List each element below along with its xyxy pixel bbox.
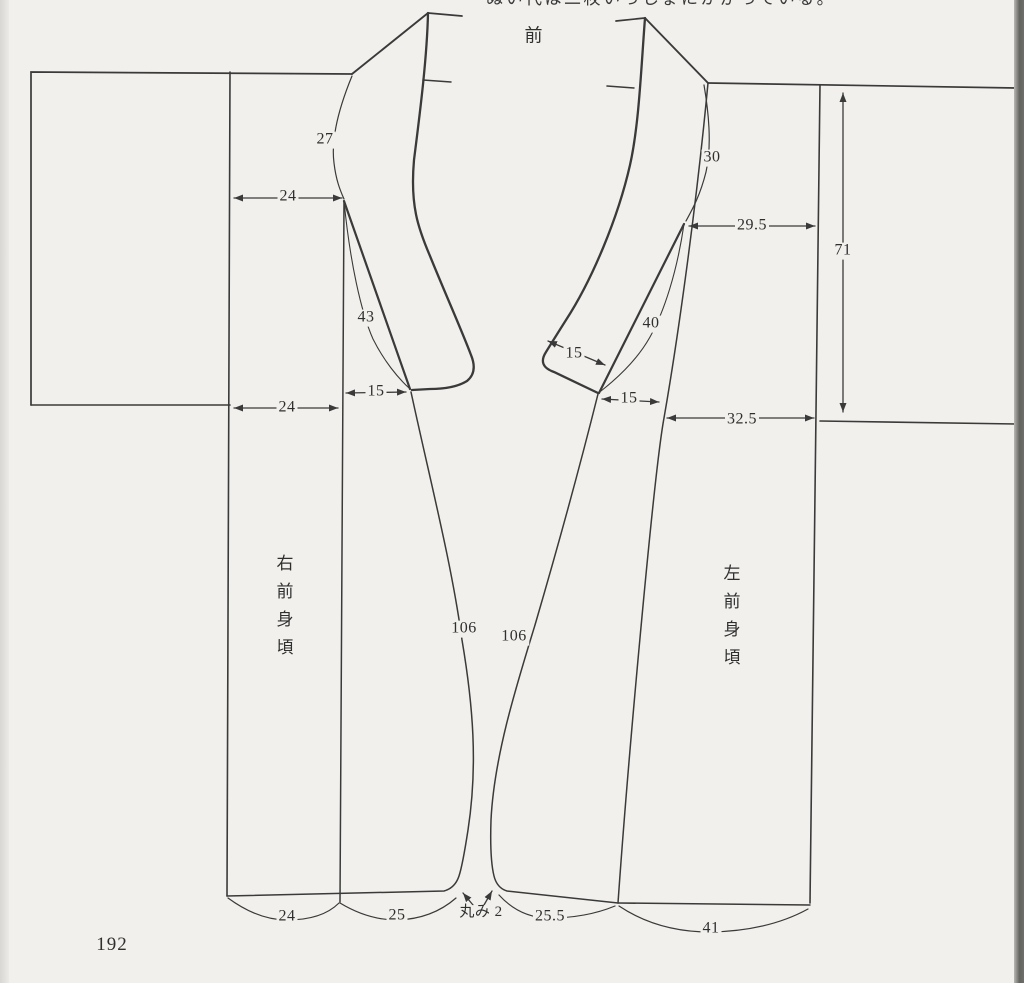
shoulder-top-edge <box>708 83 1016 88</box>
collar-outer-edge <box>412 13 474 390</box>
hem-label-41: 41 <box>701 921 722 938</box>
hem-right-of-seam <box>618 903 810 905</box>
collar-notch-tick <box>423 80 451 82</box>
top-cropped-caption: ぬい代は二枚いっしょにかがっている。 <box>484 0 838 8</box>
dim-label-106-left: 106 <box>449 621 479 638</box>
dim-label-32-5: 32.5 <box>725 412 759 429</box>
dim-label-24-upper: 24 <box>278 189 299 206</box>
dim-label-71: 71 <box>833 243 854 260</box>
okumi-seam-line <box>340 201 344 902</box>
dim-label-43: 43 <box>356 310 377 327</box>
dim-label-15-collar-width: 15 <box>564 346 585 363</box>
collar-notch-tick <box>607 86 634 88</box>
body-right-edge <box>810 85 820 903</box>
dim-label-24-lower: 24 <box>277 400 298 417</box>
kimono-front-pattern-diagram <box>0 0 1024 983</box>
hem-label-25: 25 <box>387 908 408 925</box>
collar-apex-tick <box>616 18 645 21</box>
dim-label-30: 30 <box>702 150 723 167</box>
front-edge-106-and-hem <box>491 394 618 903</box>
marumi-arrow-right <box>484 891 492 905</box>
left-front-body-label: 左前身頃 <box>720 564 741 676</box>
collar-apex-tick <box>428 13 462 16</box>
collar-attach-line <box>599 224 684 393</box>
collar-outer-edge <box>543 18 645 393</box>
page-number: 192 <box>94 935 130 955</box>
front-edge-106-and-hem <box>227 392 473 896</box>
okumi-seam-line <box>618 83 708 903</box>
collar-fold-to-shoulder <box>352 13 428 74</box>
left-front-piece <box>491 18 1016 932</box>
page-edge-shadow <box>1014 0 1024 983</box>
right-front-body-label: 右前身頃 <box>273 554 294 666</box>
right-front-piece <box>31 13 474 920</box>
hem-label-24: 24 <box>277 909 298 926</box>
neckline-curve-27 <box>333 76 352 199</box>
collar-attach-line <box>344 201 410 389</box>
collar-fold-to-shoulder <box>645 18 708 83</box>
marumi-label: 丸み 2 <box>457 905 504 921</box>
front-view-title: 前 <box>523 27 546 46</box>
scanned-pattern-page: ぬい代は二枚いっしょにかがっている。 前 27 24 43 15 24 右前身頃… <box>0 0 1024 983</box>
hem-label-25-5: 25.5 <box>533 909 567 926</box>
dim-label-40: 40 <box>641 316 662 333</box>
marumi-annotation-arrows <box>463 891 492 905</box>
sleeve-top-and-left-outline <box>31 72 352 405</box>
sleeve-bottom-edge <box>820 421 1016 424</box>
body-left-edge <box>227 72 230 896</box>
dim-label-27: 27 <box>315 132 336 149</box>
dim-label-106-right: 106 <box>499 629 529 646</box>
dim-label-15-right: 15 <box>619 391 640 408</box>
dim-label-15-left: 15 <box>366 384 387 401</box>
dim-label-29-5: 29.5 <box>735 218 769 235</box>
